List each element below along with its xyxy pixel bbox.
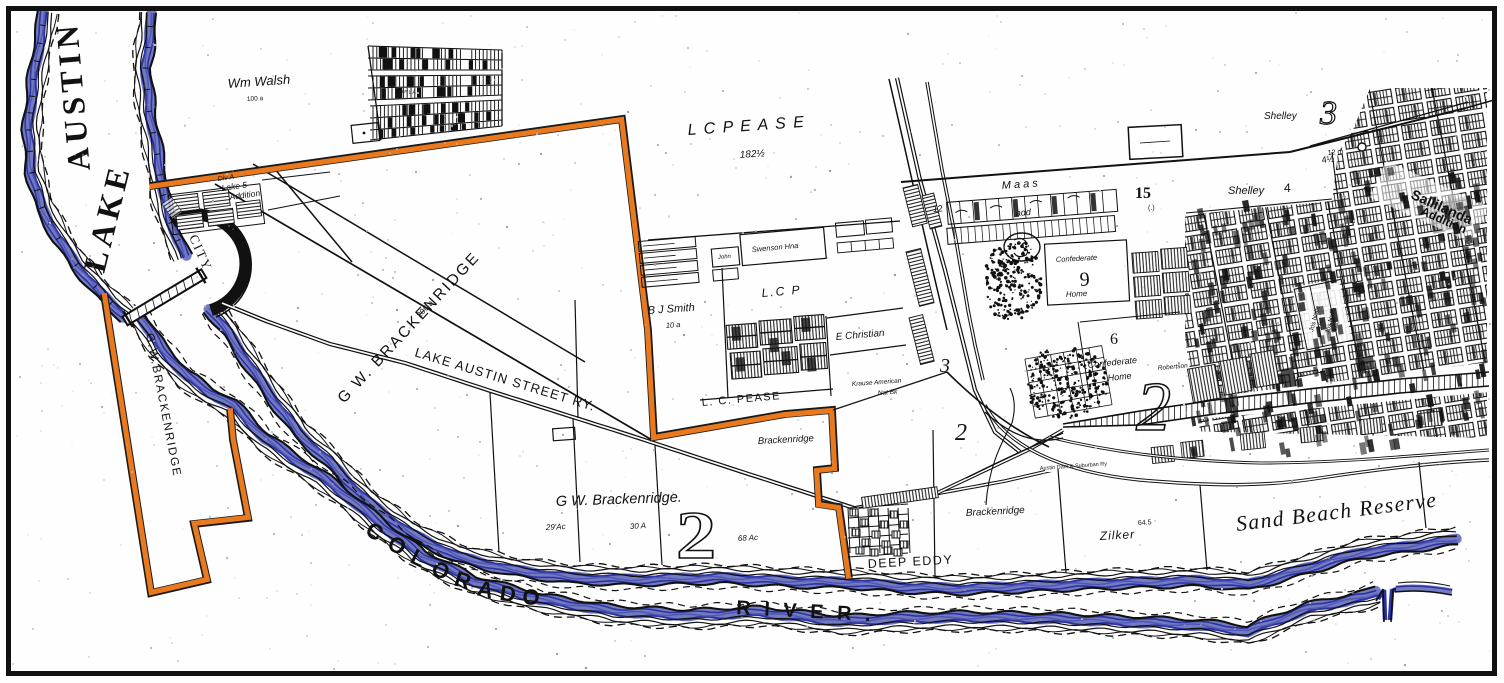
svg-text:100 a: 100 a xyxy=(247,95,264,103)
svg-text:O: O xyxy=(522,584,541,610)
svg-text:30 A: 30 A xyxy=(630,521,647,531)
svg-text:2: 2 xyxy=(955,420,967,446)
svg-text:9: 9 xyxy=(1079,268,1090,290)
svg-text:Shelley: Shelley xyxy=(1228,185,1266,197)
svg-text:15: 15 xyxy=(1135,185,1151,202)
svg-text:6: 6 xyxy=(1110,331,1118,348)
svg-text:12: 12 xyxy=(932,203,943,214)
svg-text:Nat Bk: Nat Bk xyxy=(878,389,899,397)
svg-text:Zilker: Zilker xyxy=(1098,527,1135,543)
svg-text:68 Ac: 68 Ac xyxy=(738,533,759,543)
svg-text:Home: Home xyxy=(1066,289,1088,299)
svg-text:4: 4 xyxy=(1284,181,1291,195)
svg-text:2: 2 xyxy=(676,499,716,574)
svg-text:John: John xyxy=(717,254,732,261)
svg-text:3: 3 xyxy=(1319,95,1337,132)
svg-text:64.5: 64.5 xyxy=(1138,519,1152,527)
svg-text:Shelley: Shelley xyxy=(1264,111,1298,122)
svg-text:182½: 182½ xyxy=(739,148,765,161)
svg-text:3: 3 xyxy=(939,355,950,377)
svg-text:2: 2 xyxy=(1136,369,1171,446)
svg-text:10 a: 10 a xyxy=(666,320,681,330)
svg-text:29'Ac: 29'Ac xyxy=(545,522,566,532)
svg-text:add: add xyxy=(1015,207,1032,218)
svg-text:M a a s: M a a s xyxy=(1001,177,1038,192)
svg-text:(.): (.) xyxy=(1148,205,1155,212)
